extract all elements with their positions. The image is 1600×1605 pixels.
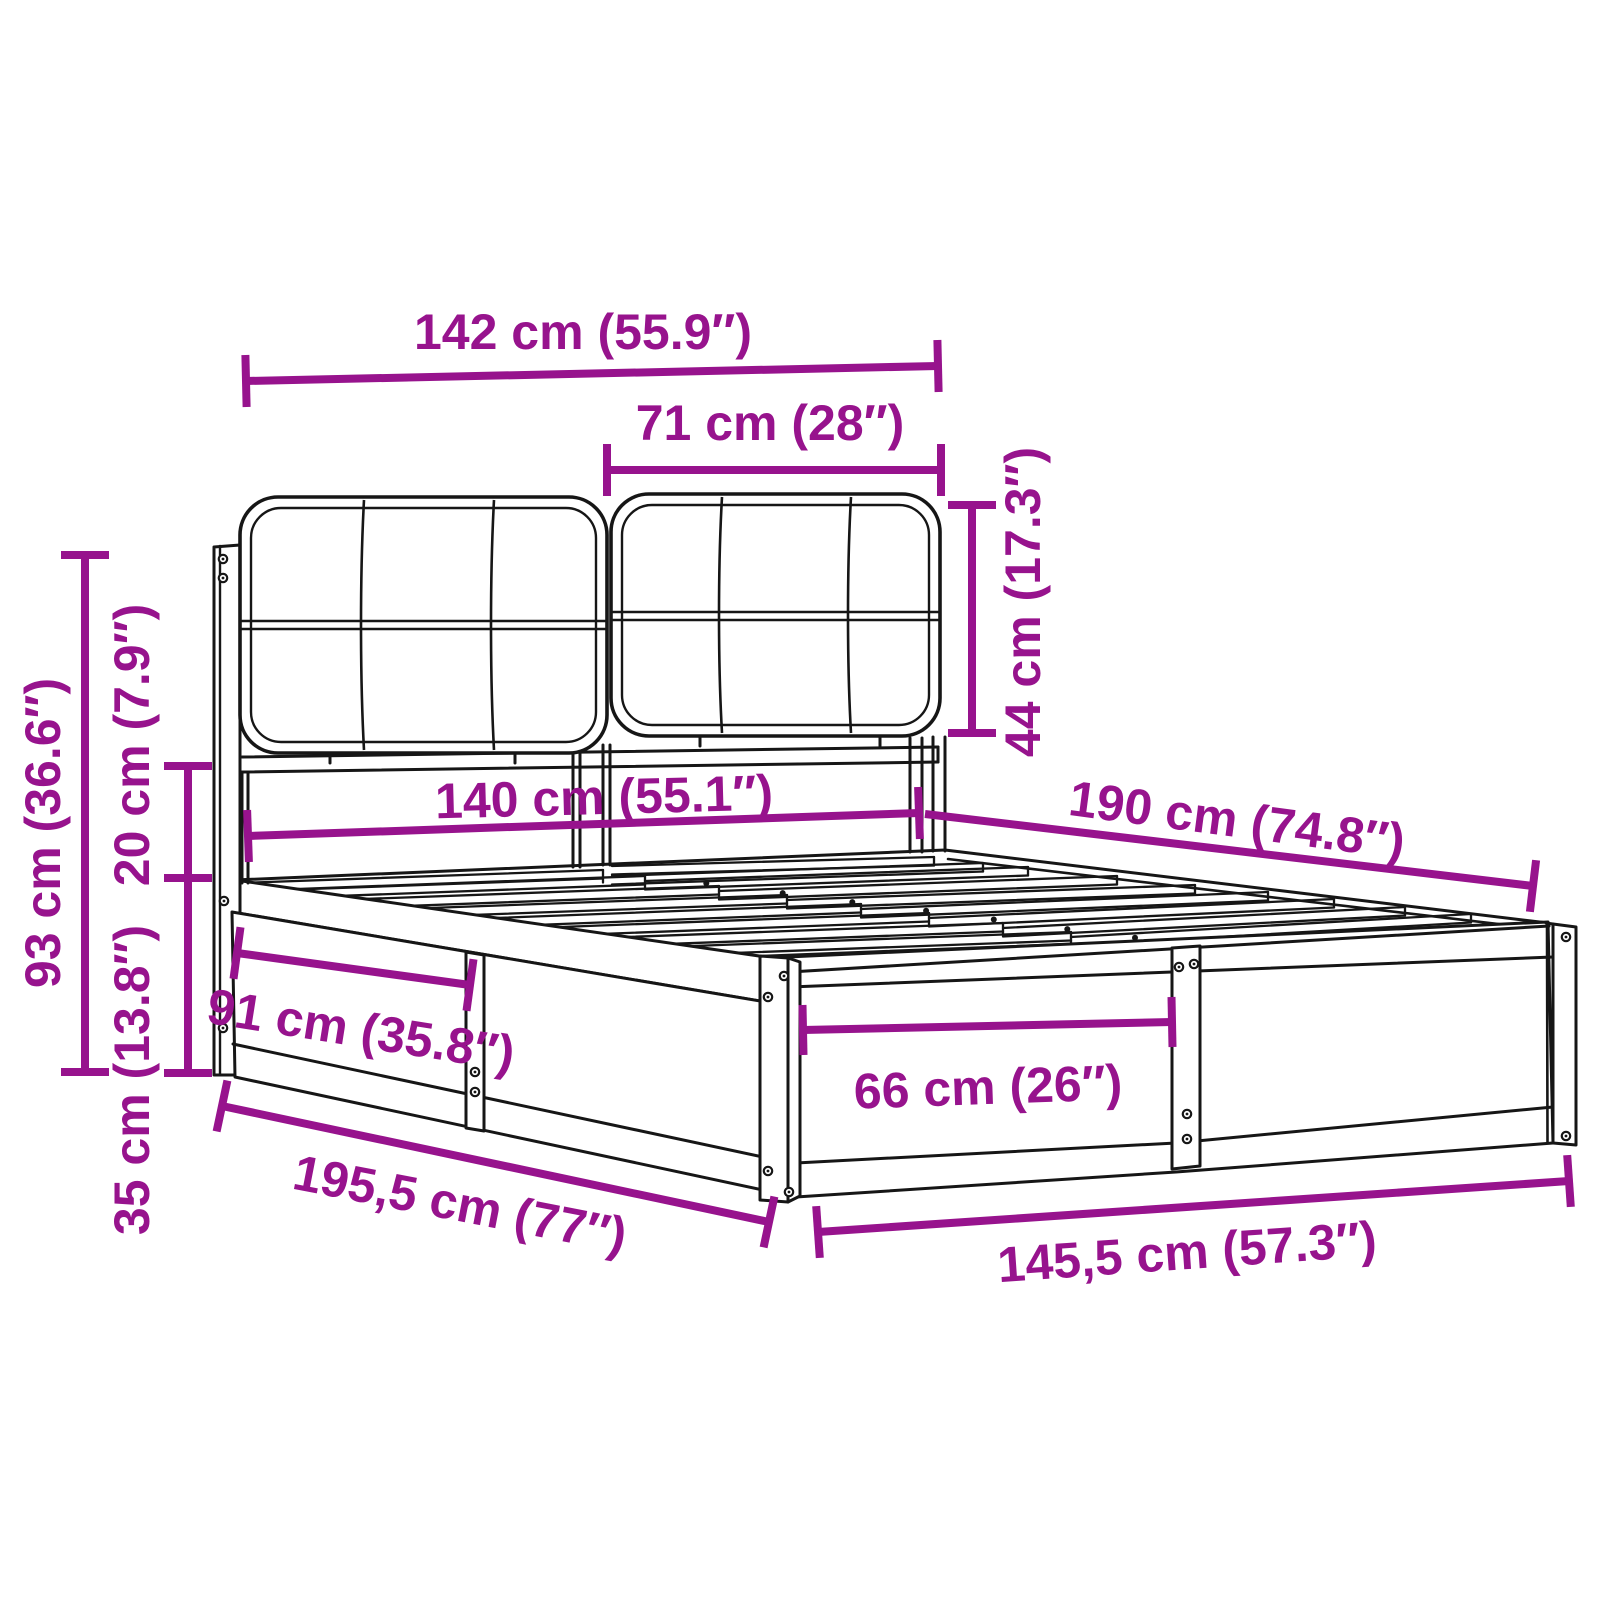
- svg-text:66 cm (26″): 66 cm (26″): [853, 1054, 1123, 1119]
- svg-text:142 cm (55.9″): 142 cm (55.9″): [414, 304, 752, 360]
- svg-text:35 cm (13.8″): 35 cm (13.8″): [104, 925, 160, 1235]
- svg-text:71 cm (28″): 71 cm (28″): [636, 395, 905, 451]
- svg-text:20 cm (7.9″): 20 cm (7.9″): [104, 604, 160, 886]
- svg-text:44 cm (17.3″): 44 cm (17.3″): [995, 447, 1051, 757]
- svg-text:93 cm (36.6″): 93 cm (36.6″): [15, 678, 71, 988]
- svg-text:140 cm (55.1″): 140 cm (55.1″): [434, 765, 773, 830]
